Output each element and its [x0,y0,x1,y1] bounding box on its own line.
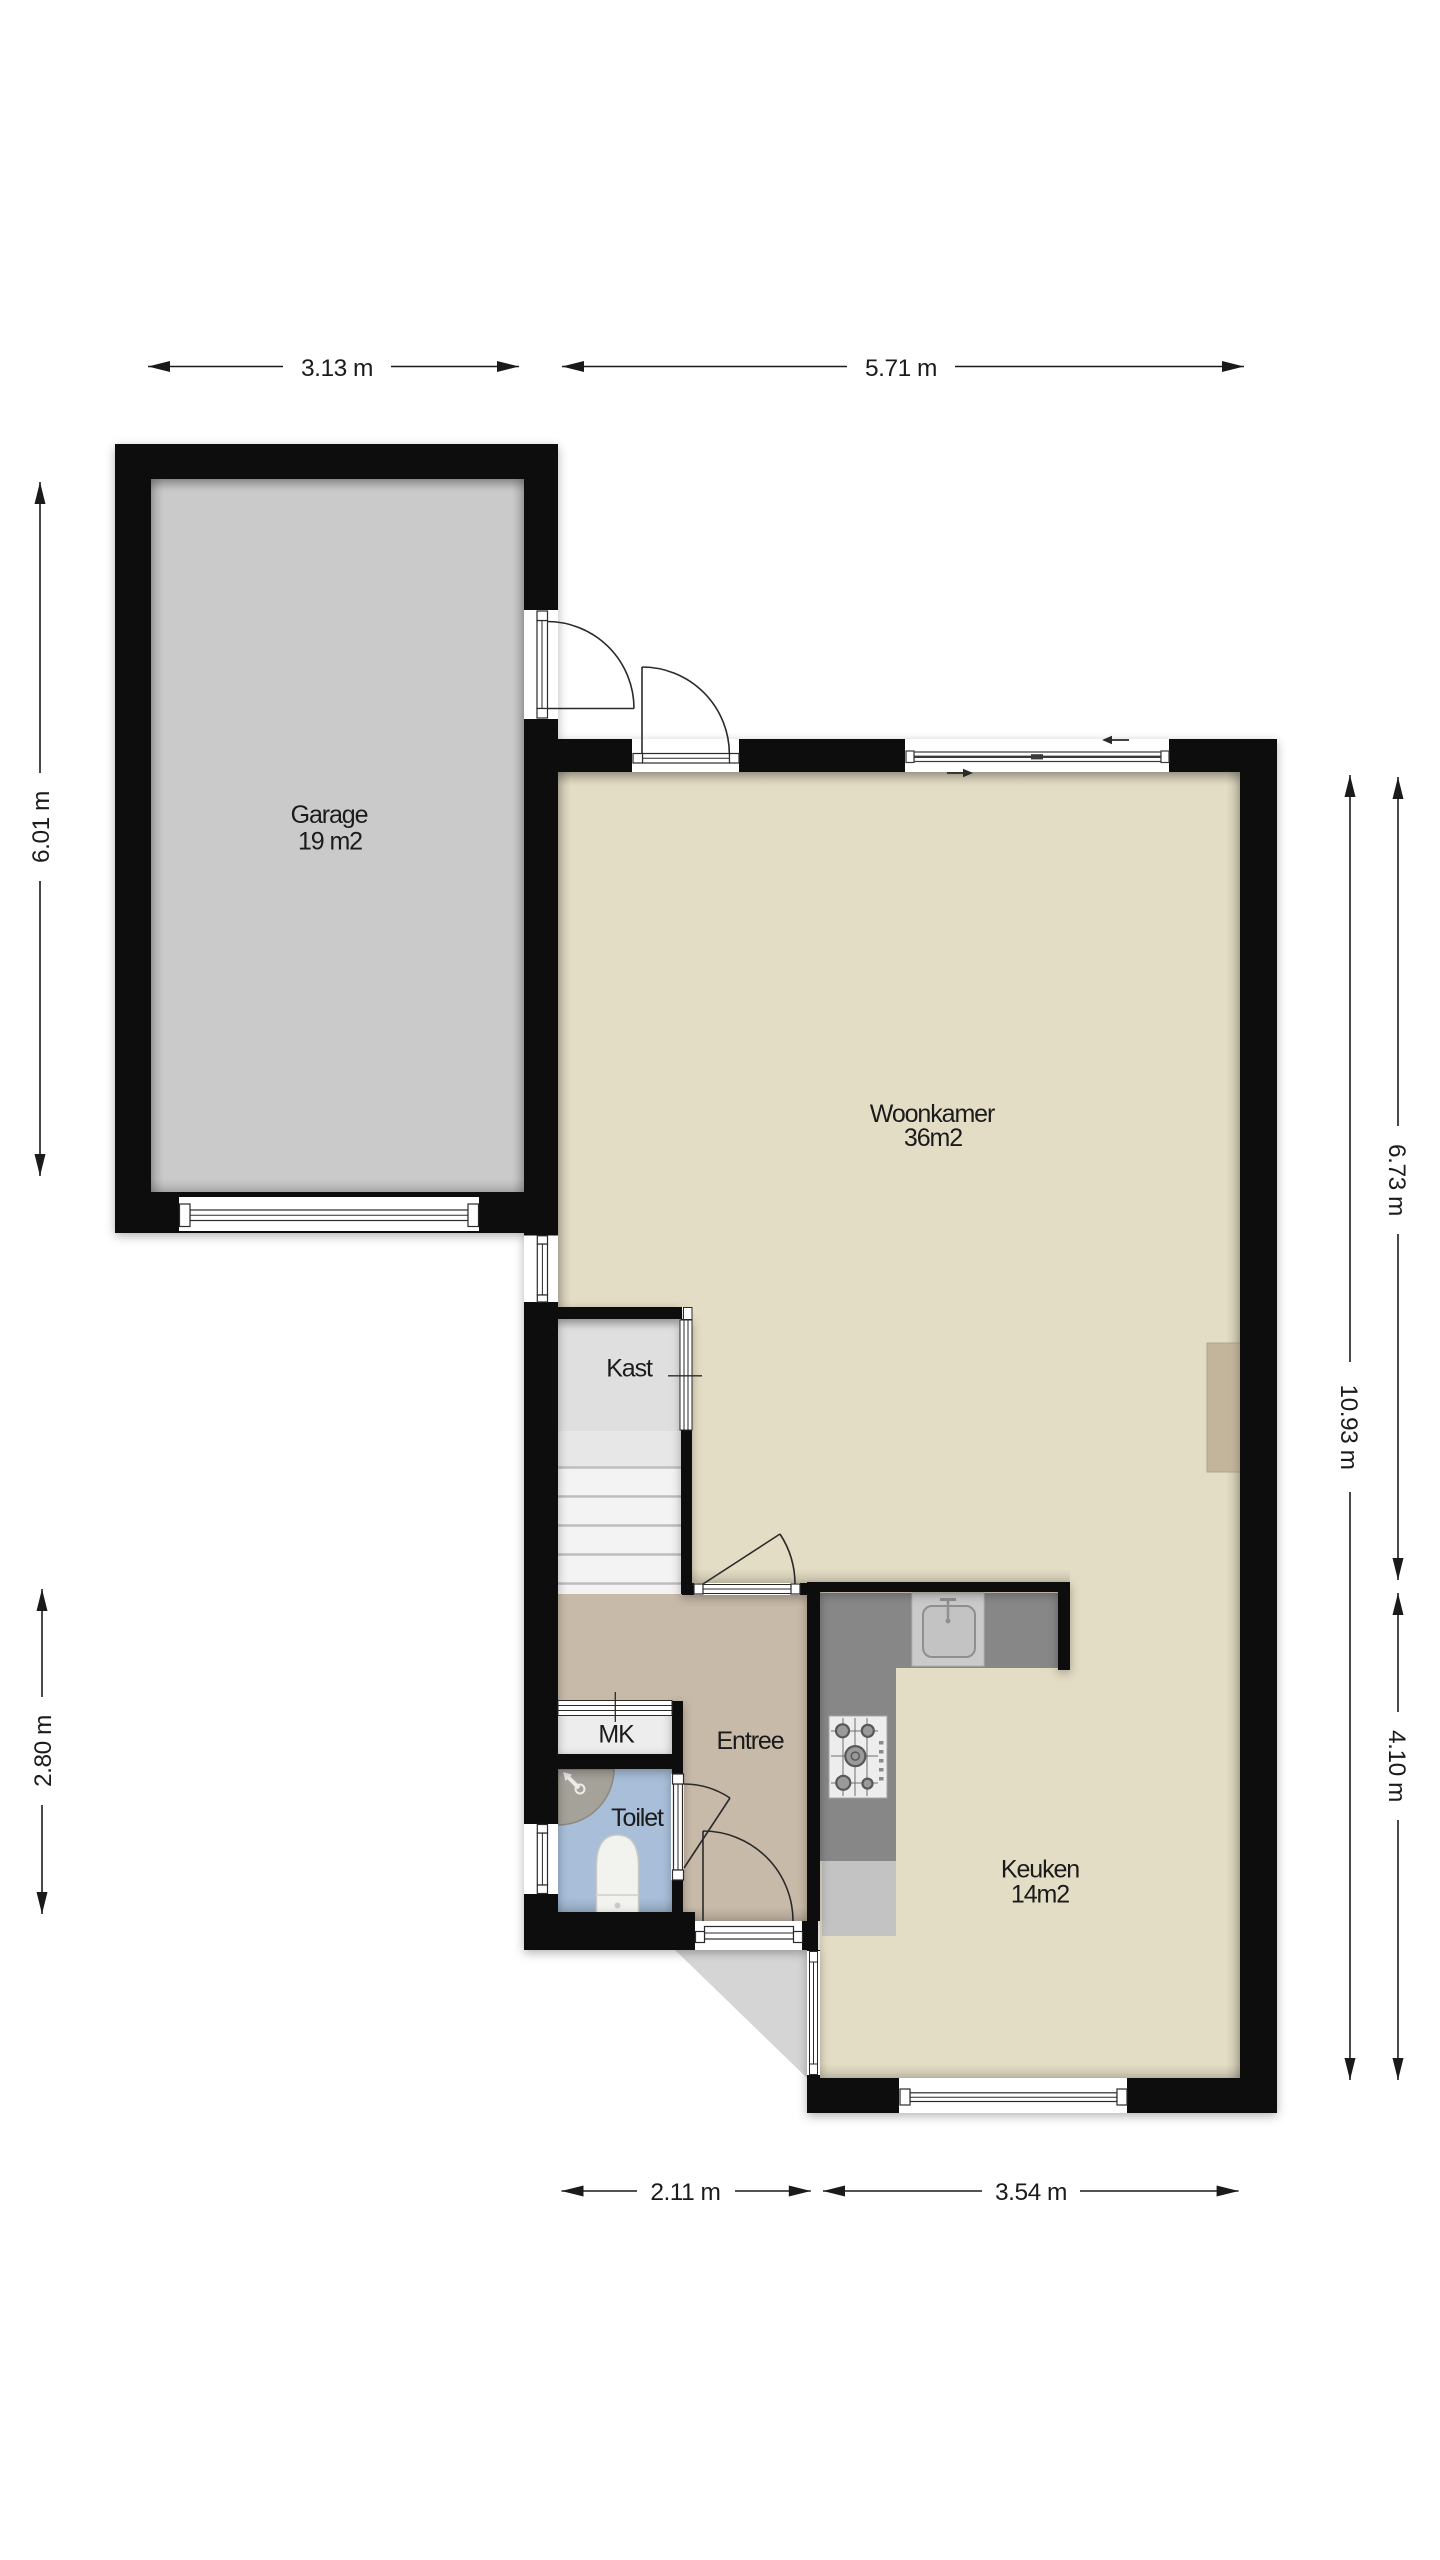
svg-text:Kast: Kast [606,1355,653,1383]
svg-text:3.54 m: 3.54 m [995,2179,1067,2206]
svg-text:Entree: Entree [716,1727,783,1755]
svg-text:Toilet: Toilet [611,1804,664,1832]
svg-text:Keuken: Keuken [1001,1856,1079,1884]
svg-text:3.13 m: 3.13 m [301,355,373,382]
svg-text:2.80 m: 2.80 m [30,1715,57,1787]
svg-text:36m2: 36m2 [904,1124,962,1152]
svg-text:5.71 m: 5.71 m [865,355,937,382]
svg-text:Garage: Garage [291,801,368,829]
svg-text:14m2: 14m2 [1011,1881,1069,1909]
svg-text:10.93 m: 10.93 m [1335,1384,1362,1469]
svg-text:4.10 m: 4.10 m [1383,1730,1410,1802]
svg-text:6.01 m: 6.01 m [28,791,55,863]
svg-text:2.11 m: 2.11 m [650,2179,720,2206]
svg-text:19 m2: 19 m2 [298,828,362,856]
svg-text:MK: MK [598,1721,635,1749]
svg-text:6.73 m: 6.73 m [1383,1144,1410,1216]
